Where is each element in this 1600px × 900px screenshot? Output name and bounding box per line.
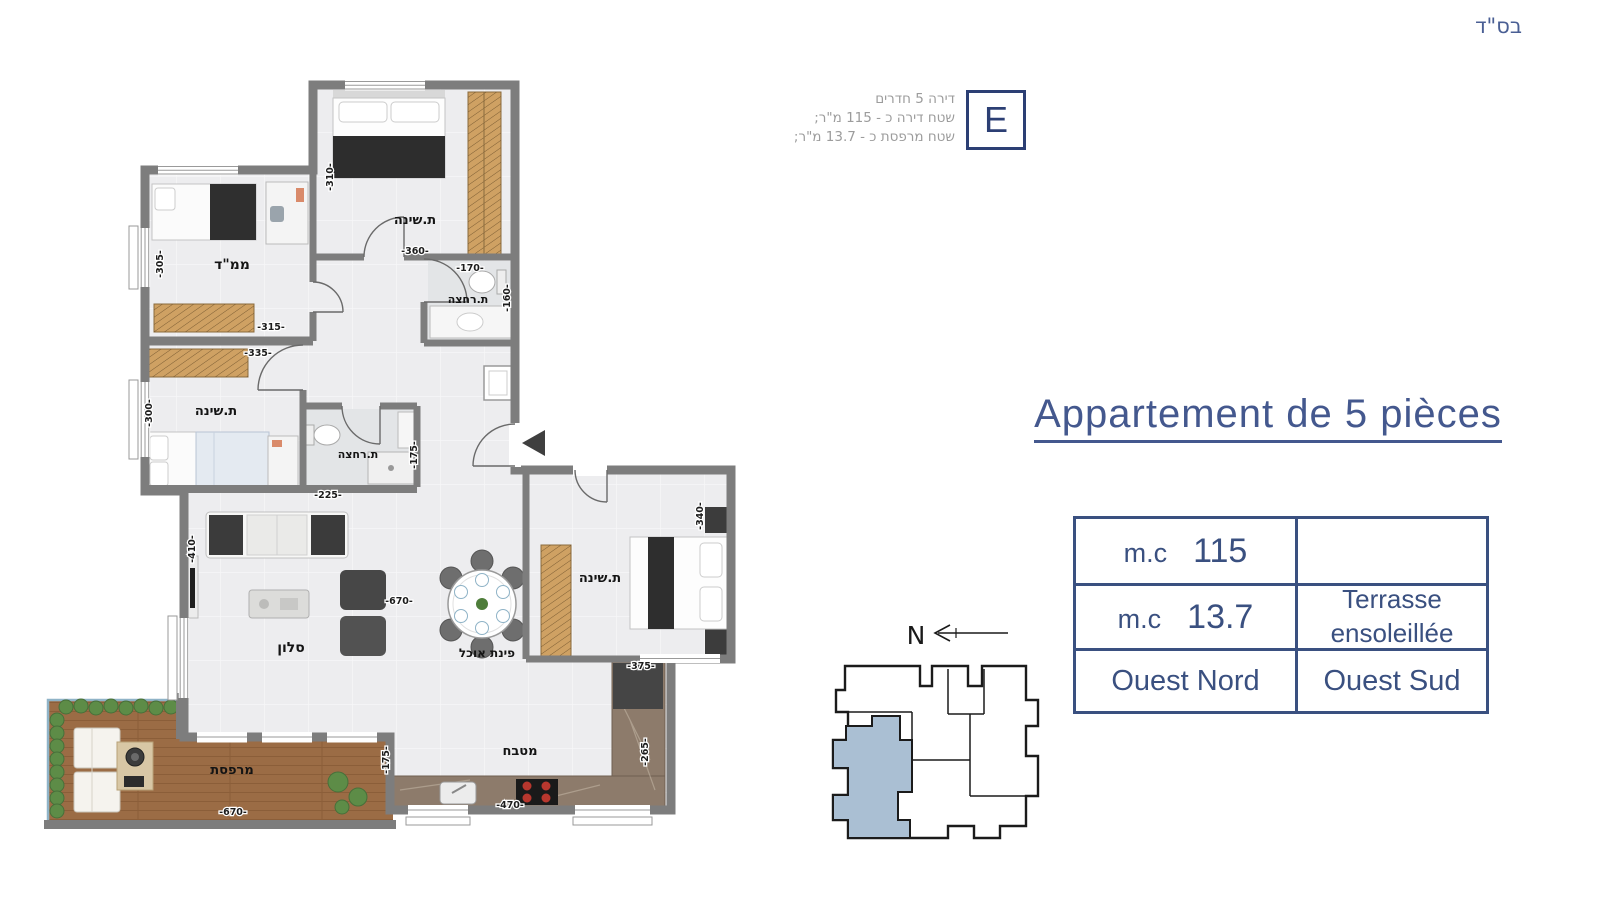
spec-table: m.c 115 m.c 13.7 Terrasse ensoleillée Ou… [1073, 516, 1489, 714]
toilet-tank [306, 425, 314, 445]
chair [270, 206, 284, 222]
pillow [150, 436, 168, 460]
dim: -670- [219, 807, 247, 818]
unit-mc-2: m.c [1118, 604, 1162, 635]
room-label-terrace: מרפסת [210, 763, 254, 778]
dim: -225- [314, 490, 342, 501]
blanket [210, 184, 256, 240]
highlighted-unit [833, 716, 912, 838]
area-total-value: 115 [1193, 532, 1247, 571]
dim: -305- [155, 250, 166, 278]
toilet [469, 271, 495, 293]
centerpiece [476, 598, 488, 610]
dim: -170- [456, 263, 484, 274]
nightstand [705, 629, 729, 655]
wardrobe [154, 304, 254, 332]
bedroom3-door-gap [573, 464, 607, 476]
north-label: N [907, 621, 926, 650]
room-label-dining: פינת אוכל [459, 646, 515, 660]
key-plan: N [815, 600, 1050, 855]
pillow [339, 102, 387, 122]
table-cell-orientation-2: Ouest Sud [1295, 648, 1486, 711]
pillow [391, 102, 439, 122]
pillow [700, 587, 722, 621]
dim: -300- [144, 399, 155, 427]
blanket [648, 537, 674, 629]
table-cell-orientation-1: Ouest Nord [1076, 648, 1295, 711]
floor-plan: ת.שינה ת.רחצה ממ"ד ת.שינה ת.רחצה ת.שינה … [30, 60, 770, 850]
kitchen-sink [440, 782, 476, 804]
dim: -160- [502, 284, 513, 312]
dim: -670- [385, 596, 413, 607]
dim: -375- [627, 661, 655, 672]
room-label-bathroom2: ת.רחצה [338, 448, 379, 461]
room-label-salon: סלון [277, 640, 305, 656]
table-cell-area-terrace: m.c 13.7 [1076, 583, 1295, 648]
wardrobe [541, 545, 571, 657]
terrace-bbq [117, 742, 153, 790]
area-terrace-value: 13.7 [1187, 598, 1253, 637]
sink [457, 313, 483, 331]
dim: -265- [640, 738, 651, 766]
armchair [340, 570, 386, 610]
unit-letter: E [984, 99, 1008, 141]
pillow [700, 543, 722, 577]
unit-letter-box: E [966, 90, 1026, 150]
tv [190, 568, 195, 608]
terrace-bottom-wall [44, 820, 396, 829]
blessing-text: בס"ד [1475, 14, 1522, 38]
wardrobe [468, 92, 501, 254]
room-label-bedroom-top: ת.שינה [394, 213, 436, 228]
dim: -335- [244, 348, 272, 359]
wardrobe [148, 349, 248, 377]
terrace-label-line2: ensoleillée [1331, 618, 1454, 648]
entry-door-gap [509, 423, 521, 467]
room-label-bedroom3: ת.שינה [579, 571, 621, 586]
blanket [333, 136, 445, 178]
blanket [196, 432, 269, 490]
dim: -315- [257, 322, 285, 333]
toilet [314, 425, 340, 445]
dim: -175- [381, 746, 392, 774]
page-title: Appartement de 5 pièces [1034, 392, 1502, 443]
dim: -470- [496, 800, 524, 811]
dim: -410- [187, 535, 198, 563]
terrace-label-line1: Terrasse [1342, 584, 1442, 614]
dim: -340- [695, 502, 706, 530]
nightstand [705, 507, 729, 533]
unit-mc-1: m.c [1124, 538, 1168, 569]
utility-shaft [484, 366, 512, 400]
entry-arrow-icon [522, 430, 545, 456]
pillow [150, 462, 168, 486]
room-label-mamad: ממ"ד [214, 257, 250, 273]
table-cell-empty [1295, 519, 1486, 583]
dim: -360- [401, 246, 429, 257]
dim: -310- [325, 163, 336, 191]
armchair [340, 616, 386, 656]
table-cell-area-total: m.c 115 [1076, 519, 1295, 583]
coffee-table [249, 590, 309, 618]
north-compass: N [907, 621, 1008, 650]
room-label-bathroom-top: ת.רחצה [448, 293, 489, 306]
dim: -175- [409, 441, 420, 469]
title-wrap: Appartement de 5 pièces [1017, 392, 1519, 443]
room-label-bedroom2: ת.שינה [195, 404, 237, 419]
room-label-kitchen: מטבח [502, 744, 537, 759]
table-cell-terrace-label: Terrasse ensoleillée [1295, 583, 1486, 648]
pillow [155, 188, 175, 210]
